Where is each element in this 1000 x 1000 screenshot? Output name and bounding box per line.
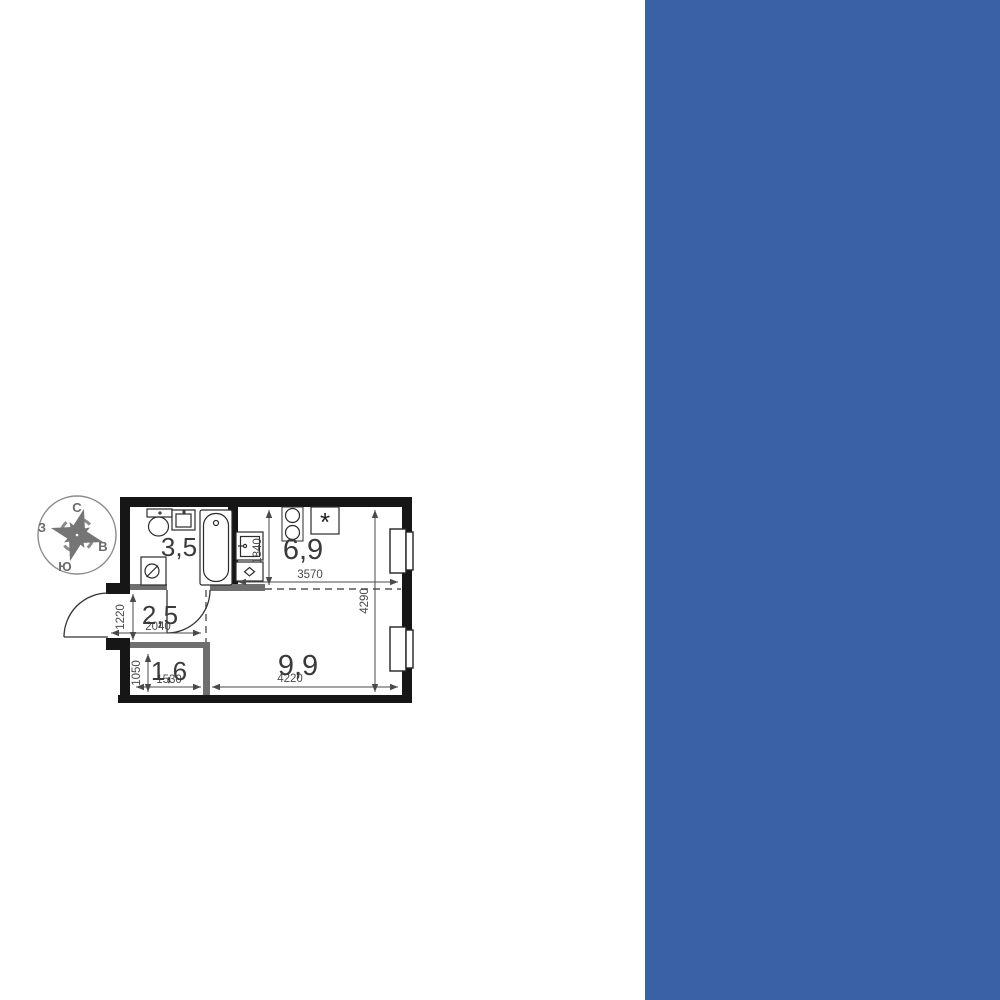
entry-door-swing (64, 593, 108, 637)
dim-label-right-side: 4290 (359, 588, 371, 614)
partition-storage-top (130, 642, 210, 648)
window-living-sill (406, 630, 413, 668)
fridge-star-symbol: * (320, 507, 330, 537)
floor-plan: С З В Ю (30, 480, 430, 720)
compass-north-label: С (72, 500, 82, 515)
bath-sink-icon (172, 510, 195, 530)
compass-rose-icon: С З В Ю (38, 496, 116, 574)
dim-label-kitchen-width: 3570 (297, 569, 323, 581)
window-kitchen-sill (406, 532, 413, 570)
doors (64, 590, 210, 637)
wall-top (120, 497, 412, 507)
wall-bottom (118, 695, 412, 703)
listing-card: С З В Ю (0, 0, 1000, 1000)
partition-storage-right (203, 648, 210, 695)
info-panel: 1 ДСК 1-й ЯСЕНЕВСКИЙ Площадь 24 м2 Отдел… (645, 0, 1000, 1000)
room-label-bathroom: 3,5 (161, 532, 197, 562)
dim-label-storage-left: 1050 (131, 660, 143, 686)
bathtub-icon (200, 510, 232, 585)
compass-east-label: В (98, 539, 107, 554)
entry-jamb-bottom (106, 638, 130, 650)
compass-south-label: Ю (58, 559, 71, 574)
entry-jamb-top (106, 583, 130, 594)
compass-center-dot (76, 534, 79, 537)
room-label-storage: 1,6 (151, 656, 187, 686)
window-living (390, 627, 406, 671)
wall-left-upper (120, 507, 130, 585)
compass-west-label: З (38, 520, 46, 535)
room-label-kitchen: 6,9 (283, 534, 323, 566)
zone-boundaries (206, 589, 401, 642)
room-label-living: 9,9 (278, 650, 318, 682)
dim-label-hall-left: 1220 (115, 604, 127, 630)
room-label-hall: 2,5 (142, 600, 178, 630)
window-kitchen (390, 529, 406, 573)
kitchen-cabinet-icon (236, 562, 263, 581)
wall-left-lower (120, 650, 130, 695)
dim-label-kitchen-depth: 1840 (252, 538, 264, 564)
